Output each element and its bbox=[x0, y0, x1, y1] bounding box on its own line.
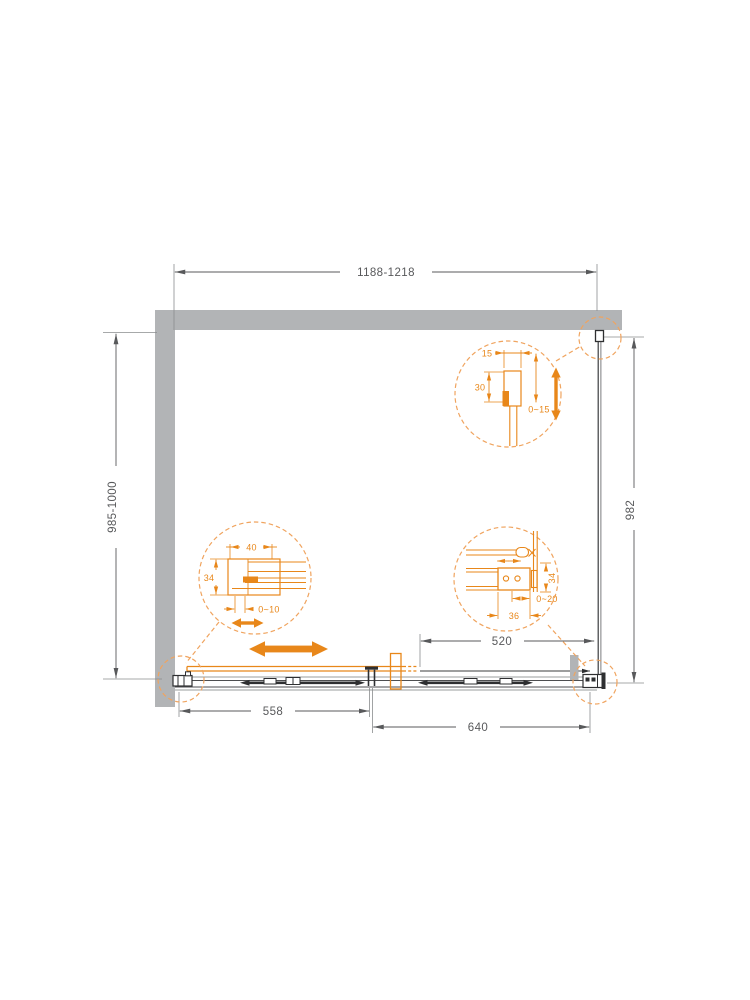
dimension-opening-width: 520 bbox=[420, 634, 594, 667]
right-corner-bracket bbox=[583, 673, 606, 690]
detail-top-right: 15 30 0~15 bbox=[475, 349, 561, 447]
dimension-right-section: 640 bbox=[373, 688, 591, 734]
detail-middle-left: 40 34 0~10 bbox=[204, 543, 306, 628]
right-section-label: 640 bbox=[468, 722, 488, 734]
detail-mr-width-label: 36 bbox=[509, 611, 520, 621]
left-wall-bracket bbox=[173, 672, 192, 686]
detail-mr-depth-label: 34 bbox=[547, 573, 557, 584]
top-wall bbox=[155, 310, 622, 330]
left-wall bbox=[155, 310, 175, 707]
panel-height-label: 982 bbox=[625, 500, 637, 520]
detail-tr-depth-label: 30 bbox=[475, 383, 486, 393]
detail-ml-width-label: 40 bbox=[246, 543, 257, 553]
detail-tr-adjust-label: 0~15 bbox=[528, 405, 549, 415]
technical-drawing: 1188-1218 985-1000 982 bbox=[0, 0, 750, 1000]
sliding-door-track bbox=[173, 654, 606, 691]
right-carriage bbox=[418, 679, 533, 686]
dimension-panel-height: 982 bbox=[604, 337, 644, 683]
detail-ml-adjust-label: 0~10 bbox=[258, 605, 279, 615]
left-section-label: 558 bbox=[263, 706, 283, 718]
vertical-adjust-arrow bbox=[551, 368, 560, 421]
overall-height-label: 985-1000 bbox=[107, 481, 119, 533]
center-door-stop bbox=[365, 667, 378, 687]
detail-ml-depth-label: 34 bbox=[204, 573, 215, 583]
dimension-left-section: 558 bbox=[179, 688, 370, 718]
fixed-panel-clamp bbox=[570, 655, 579, 680]
detail-tr-width-label: 15 bbox=[482, 349, 493, 359]
overall-width-label: 1188-1218 bbox=[357, 267, 415, 279]
sliding-door-glass bbox=[187, 667, 418, 672]
detail-middle-right: 34 0~20 36 bbox=[466, 531, 558, 621]
walls bbox=[155, 310, 622, 707]
left-carriage bbox=[240, 678, 365, 686]
horizontal-adjust-arrow bbox=[232, 618, 264, 627]
drawing-canvas: 1188-1218 985-1000 982 bbox=[0, 0, 750, 1000]
dimension-overall-height: 985-1000 bbox=[103, 333, 162, 680]
callout-circles bbox=[158, 317, 621, 704]
panel-top-bracket bbox=[596, 331, 604, 342]
opening-width-label: 520 bbox=[492, 636, 512, 648]
detail-mr-adjust-label: 0~20 bbox=[536, 594, 557, 604]
slide-direction-arrow bbox=[249, 641, 328, 657]
detail-circle-middle-right bbox=[454, 527, 558, 631]
side-glass-panel bbox=[596, 331, 604, 688]
